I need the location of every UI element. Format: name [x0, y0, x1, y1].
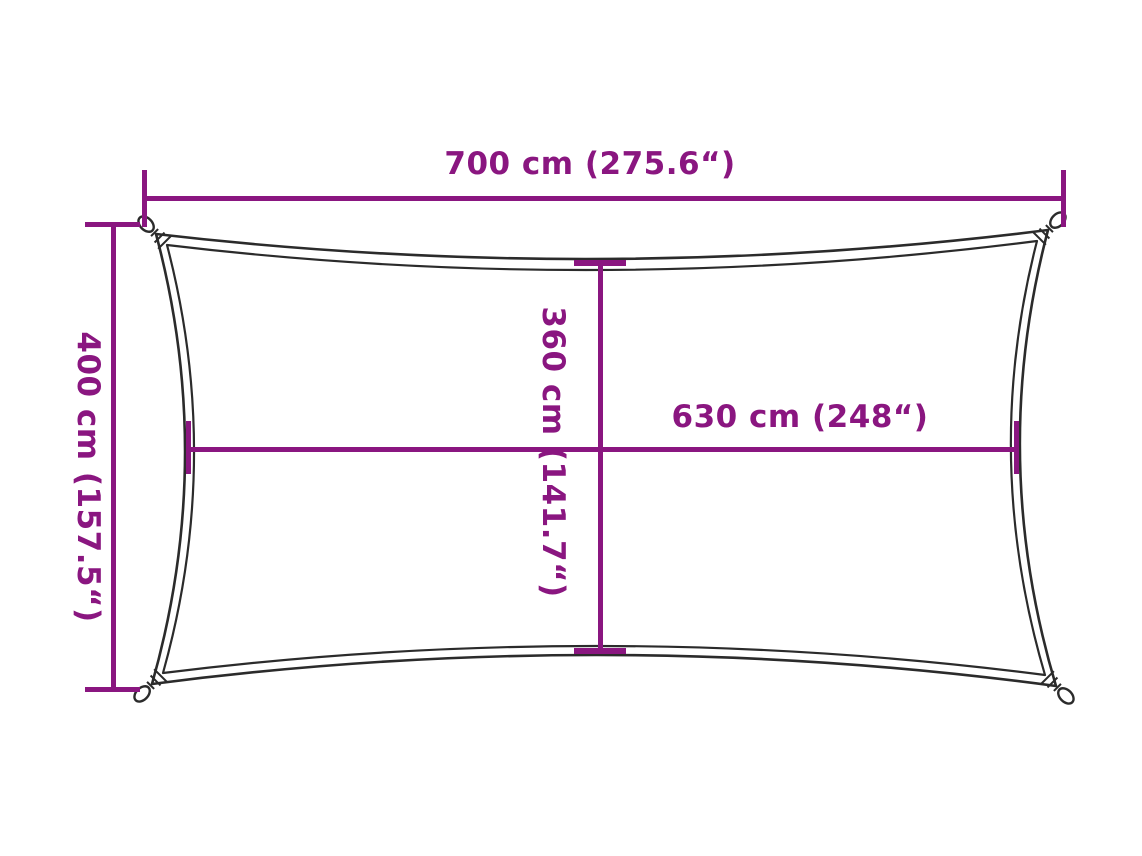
shade-sail-dimension-diagram: 700 cm (275.6“) 400 cm (157.5“) 360 cm (… [0, 0, 1142, 856]
sail-drawing [0, 0, 1142, 856]
corner-loop-top-right [1033, 207, 1070, 244]
sail-outline-outer [152, 230, 1056, 686]
corner-loop-bottom-left [129, 669, 166, 706]
corner-loop-top-left [133, 211, 170, 248]
corner-loop-bottom-right [1041, 671, 1078, 708]
sail-outline-inner [163, 241, 1045, 675]
